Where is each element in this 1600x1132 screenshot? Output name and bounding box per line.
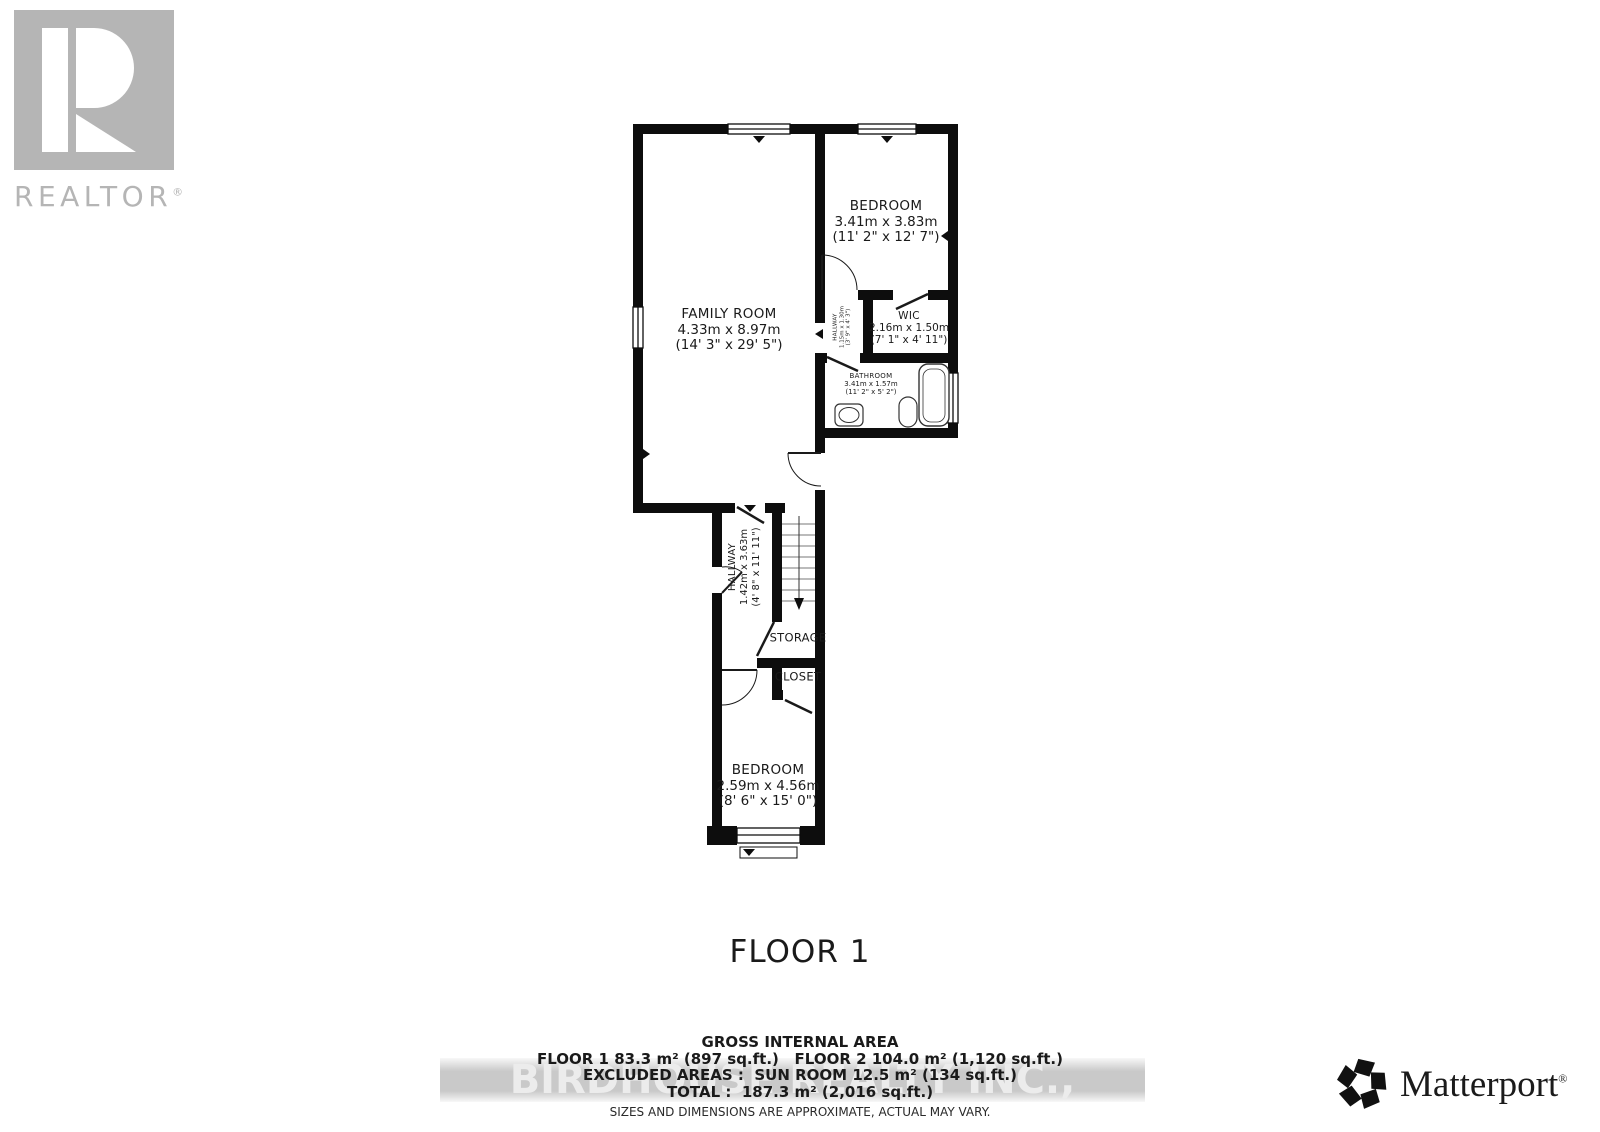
matterport-icon [1336, 1058, 1388, 1110]
area-heading: GROSS INTERNAL AREA [390, 1034, 1210, 1051]
matterport-reg-mark: ® [1558, 1071, 1567, 1085]
area-floors-line: FLOOR 1 83.3 m² (897 sq.ft.) FLOOR 2 104… [390, 1051, 1210, 1068]
room-label-hallway-small: HALLWAY 1.15m x 1.30m (3' 9" x 4' 3") [832, 306, 852, 348]
room-label-closet: CLOSET [775, 671, 821, 684]
room-label-bathroom: BATHROOM 3.41m x 1.57m (11' 2" x 5' 2") [844, 372, 897, 396]
area-summary: GROSS INTERNAL AREA FLOOR 1 83.3 m² (897… [390, 1034, 1210, 1121]
room-label-family-room: FAMILY ROOM 4.33m x 8.97m (14' 3" x 29' … [675, 307, 782, 354]
room-label-wic: WIC 2.16m x 1.50m (7' 1" x 4' 11") [869, 310, 949, 346]
room-label-hallway-main: HALLWAY 1.42m x 3.63m (4' 8" x 11' 11") [727, 527, 763, 606]
room-label-storage: STORAGE [770, 632, 827, 645]
sink [899, 397, 917, 427]
floorplan-page: REALTOR® BIRDHOUSE REALTY INC., Brokerag… [0, 0, 1600, 1132]
room-label-bedroom-top: BEDROOM 3.41m x 3.83m (11' 2" x 12' 7") [832, 199, 939, 246]
floor-title: FLOOR 1 [730, 934, 871, 970]
area-excluded-line: EXCLUDED AREAS : SUN ROOM 12.5 m² (134 s… [390, 1067, 1210, 1084]
stairs-direction-arrow [794, 598, 804, 610]
matterport-wordmark: Matterport® [1400, 1063, 1567, 1106]
matterport-logo: Matterport® [1336, 1058, 1567, 1110]
area-disclaimer: SIZES AND DIMENSIONS ARE APPROXIMATE, AC… [390, 1104, 1210, 1121]
area-total-line: TOTAL : 187.3 m² (2,016 sq.ft.) [390, 1084, 1210, 1101]
staircase [782, 516, 815, 610]
room-label-bedroom-bottom: BEDROOM 2.59m x 4.56m (8' 6" x 15' 0") [717, 763, 820, 810]
